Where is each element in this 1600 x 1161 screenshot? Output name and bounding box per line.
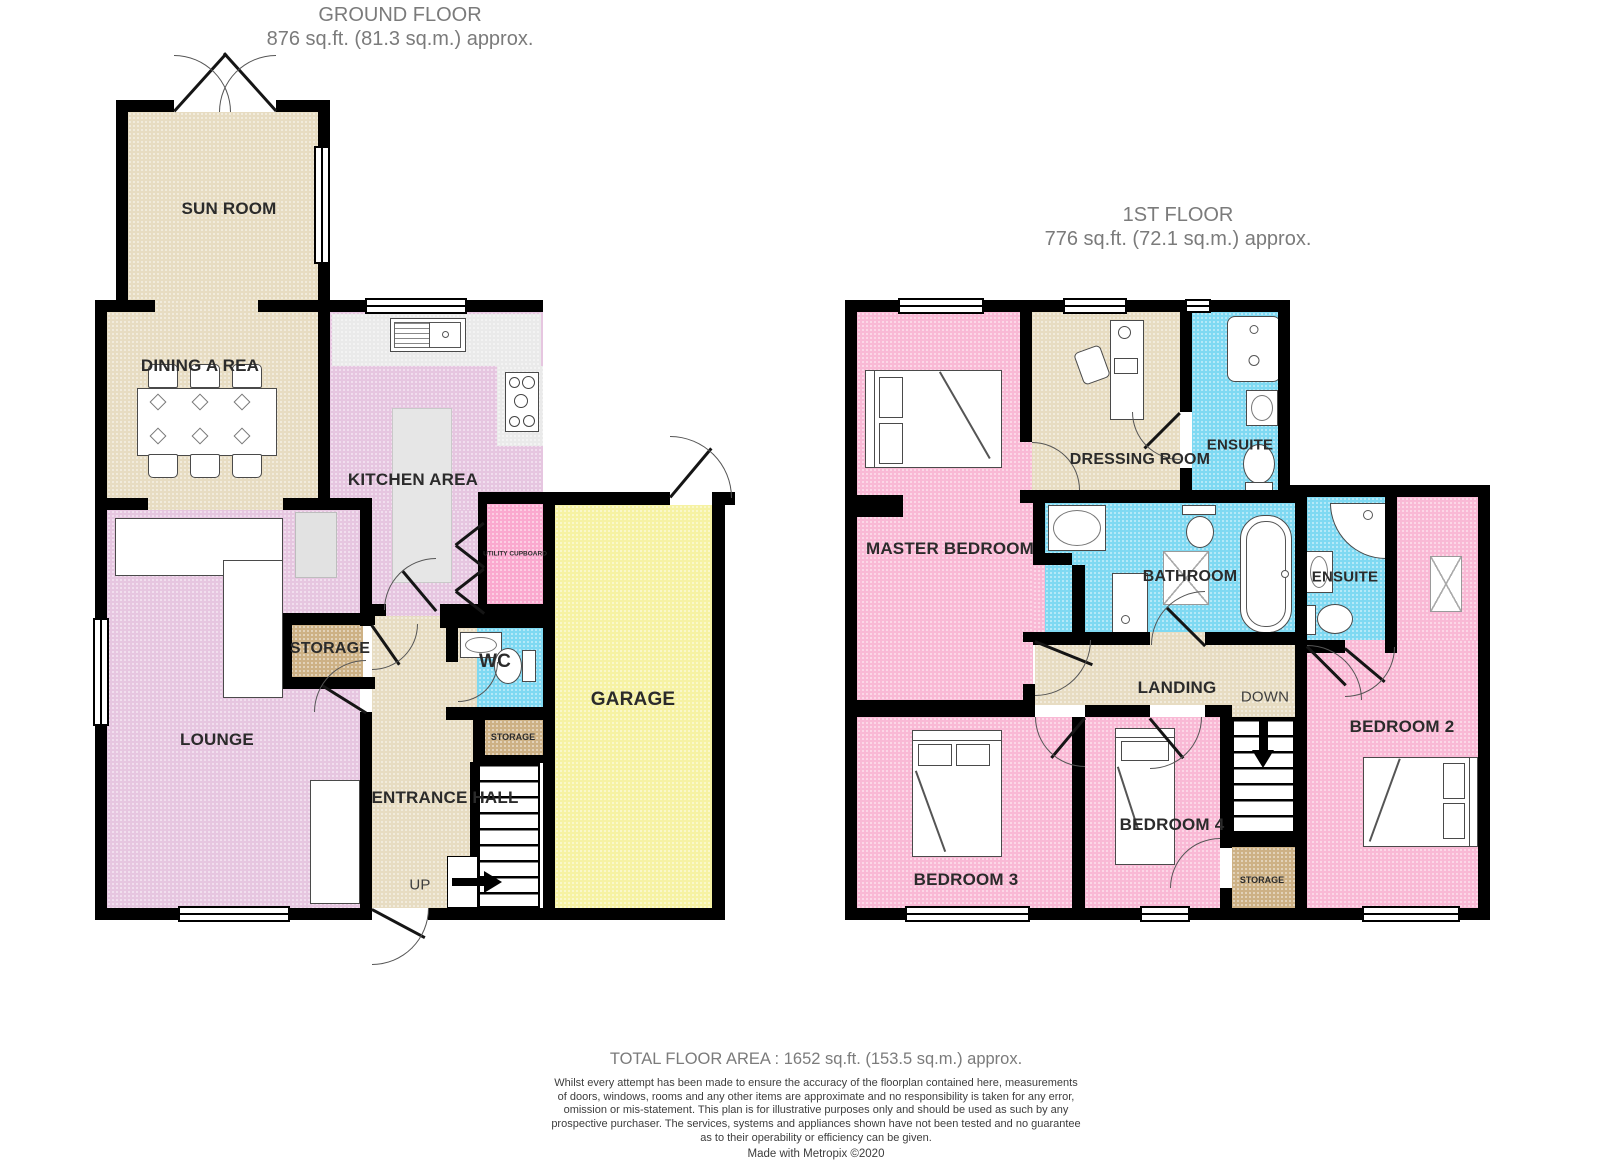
label-storage: STORAGE — [290, 640, 370, 658]
label-wc: WC — [479, 651, 511, 673]
stairs-up-arrowhead — [484, 871, 502, 893]
first-floor-title: 1ST FLOOR 776 sq.ft. (72.1 sq.m.) approx… — [1045, 204, 1312, 251]
bed-headboard — [912, 730, 1002, 741]
wall — [360, 510, 372, 626]
burner — [522, 376, 535, 389]
chimney-breast — [857, 495, 903, 517]
window — [1140, 906, 1190, 922]
wall — [1295, 645, 1307, 908]
sink-drainer — [394, 322, 430, 348]
label-utility-cupboard: UTILITY CUPBOARD — [483, 551, 547, 558]
bed-headboard — [865, 370, 875, 468]
wall — [1278, 300, 1290, 497]
desk-drawer — [1114, 358, 1138, 374]
corner-sofa-section — [223, 560, 283, 698]
window — [365, 298, 467, 314]
dining-chair — [190, 454, 220, 478]
ensuite-sink — [1246, 390, 1278, 426]
stairs-down-arrow — [1259, 720, 1268, 750]
bed-headboard — [1469, 757, 1478, 847]
dining-chair — [148, 454, 178, 478]
wall — [1180, 468, 1192, 490]
wall — [1020, 312, 1032, 442]
window — [93, 618, 109, 726]
bed-pillow — [879, 377, 903, 418]
wall — [845, 300, 857, 920]
wall — [473, 707, 485, 762]
label-bedroom-2: BEDROOM 2 — [1350, 717, 1455, 737]
toilet-bowl — [1186, 516, 1214, 548]
window — [1185, 299, 1211, 313]
first-floor-subtitle: 776 sq.ft. (72.1 sq.m.) approx. — [1045, 228, 1312, 252]
footer: TOTAL FLOOR AREA : 1652 sq.ft. (153.5 sq… — [531, 1050, 1101, 1160]
label-landing: LANDING — [1138, 678, 1217, 698]
lounge-unit — [295, 512, 337, 578]
toilet-tank — [1182, 505, 1216, 515]
wall — [1278, 485, 1490, 497]
door-arc — [372, 908, 429, 965]
wall — [95, 300, 107, 920]
stairs-up-arrow — [452, 878, 484, 886]
label-down: DOWN — [1241, 689, 1289, 706]
bed-pillow — [879, 423, 903, 464]
room-landing-stair-head — [1232, 705, 1295, 717]
mirror — [1118, 326, 1131, 339]
label-ensuite-1: ENSUITE — [1207, 437, 1273, 454]
wall — [116, 100, 128, 312]
sofa — [310, 780, 360, 904]
wall — [360, 712, 372, 908]
wall — [116, 100, 174, 112]
dining-chair — [232, 454, 262, 478]
stove-hob — [505, 372, 539, 432]
burner — [509, 377, 520, 388]
ground-floor-title: GROUND FLOOR 876 sq.ft. (81.3 sq.m.) app… — [267, 4, 534, 51]
room-sun-room-opening — [143, 300, 263, 312]
wall — [283, 613, 375, 625]
window — [1362, 906, 1460, 922]
shower-tap — [1250, 325, 1259, 334]
wall — [318, 312, 330, 498]
wall — [1295, 497, 1307, 645]
metropix-credit: Made with Metropix ©2020 — [531, 1148, 1101, 1160]
wall — [1220, 888, 1232, 908]
label-sun-room: SUN ROOM — [181, 199, 276, 219]
disclaimer-text: Whilst every attempt has been made to en… — [531, 1077, 1101, 1145]
label-master-bedroom: MASTER BEDROOM — [866, 539, 1034, 559]
wc-toilet-tank — [522, 650, 536, 682]
bathtub-inner — [1246, 521, 1286, 627]
bathtub — [1240, 515, 1292, 633]
kitchen-sink — [390, 318, 466, 352]
bed-pillow — [956, 744, 990, 766]
first-floor-title-text: 1ST FLOOR — [1045, 204, 1312, 228]
burner — [509, 416, 520, 427]
bathroom-sink — [1048, 505, 1106, 551]
door-arc — [670, 436, 732, 498]
wall — [478, 492, 487, 604]
vanity-drain — [1121, 615, 1130, 624]
wall — [95, 498, 148, 510]
label-storage-1f: STORAGE — [1240, 875, 1284, 885]
ground-floor-title-text: GROUND FLOOR — [267, 4, 534, 28]
wall — [446, 707, 543, 720]
sink-drain — [442, 331, 449, 338]
burner — [514, 394, 528, 408]
floorplan-page: { "colors": { "beige": "#E7DCC2", "lilac… — [0, 0, 1600, 1161]
label-bathroom: BATHROOM — [1143, 568, 1238, 586]
bed-pillow — [1443, 763, 1465, 799]
label-garage: GARAGE — [591, 689, 676, 711]
window — [898, 298, 984, 314]
kitchen-island — [392, 408, 452, 583]
label-ensuite-2: ENSUITE — [1312, 569, 1378, 586]
wall — [283, 498, 372, 510]
wall — [478, 492, 543, 504]
window — [905, 906, 1030, 922]
wall — [440, 604, 543, 628]
bed-pillow — [1443, 803, 1465, 839]
ground-floor-subtitle: 876 sq.ft. (81.3 sq.m.) approx. — [267, 28, 534, 52]
label-kitchen-area: KITCHEN AREA — [348, 470, 478, 490]
wall — [473, 755, 543, 763]
total-floor-area: TOTAL FLOOR AREA : 1652 sq.ft. (153.5 sq… — [531, 1050, 1101, 1069]
bed-pillow — [918, 744, 952, 766]
shower-tap — [1363, 510, 1373, 520]
wall — [428, 908, 725, 920]
label-dining-area: DINING A REA — [141, 356, 259, 376]
wall — [1385, 497, 1397, 653]
wall — [1205, 632, 1295, 645]
window — [1063, 298, 1127, 314]
wall — [1478, 485, 1490, 920]
window — [314, 146, 330, 264]
wall — [712, 492, 725, 920]
wall — [1180, 312, 1192, 412]
label-dressing-room: DRESSING ROOM — [1070, 451, 1210, 469]
wall — [845, 700, 1035, 717]
wardrobe — [1430, 556, 1462, 612]
label-entrance-hall: ENTRANCE HALL — [371, 788, 518, 808]
wall — [1232, 835, 1295, 847]
toilet-bowl — [1317, 604, 1353, 634]
shower-tray — [1227, 316, 1281, 382]
wall — [258, 300, 330, 312]
shower-drain — [1249, 355, 1260, 366]
stairs-down-arrowhead — [1252, 750, 1274, 768]
wall — [1023, 684, 1035, 700]
label-up: UP — [409, 877, 430, 894]
wall — [1020, 490, 1307, 503]
label-storage-small: STORAGE — [491, 732, 535, 742]
bathtub-tap — [1281, 570, 1289, 578]
door-arc — [219, 55, 276, 112]
burner — [523, 415, 535, 427]
wall — [1033, 553, 1072, 565]
wall — [446, 628, 458, 662]
wall — [470, 762, 478, 856]
label-lounge: LOUNGE — [180, 730, 254, 750]
wall — [1085, 705, 1150, 717]
label-bedroom-4: BEDROOM 4 — [1120, 815, 1225, 835]
wall — [543, 492, 670, 505]
window — [178, 906, 290, 922]
label-bedroom-3: BEDROOM 3 — [914, 870, 1019, 890]
